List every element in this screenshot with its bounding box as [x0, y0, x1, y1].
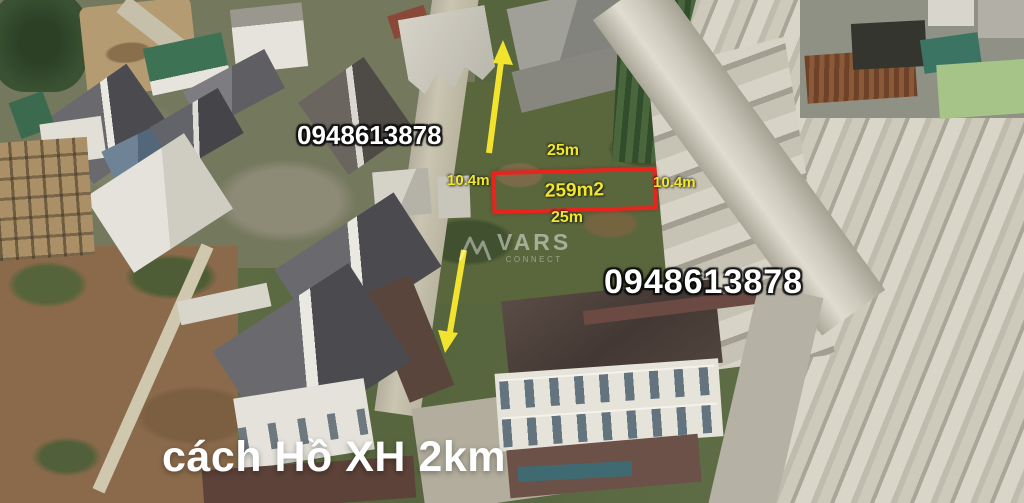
plot-outline: 259m2: [491, 167, 657, 214]
phone-number-bottom: 0948613878: [604, 263, 803, 302]
plot-dim-top: 25m: [547, 142, 579, 160]
phone-number-top: 0948613878: [297, 120, 442, 151]
distance-caption: cách Hồ XH 2km: [162, 433, 506, 482]
vars-logo-icon: [458, 234, 492, 262]
watermark-brand: VARS: [497, 231, 571, 254]
plot-dim-left: 10.4m: [447, 172, 490, 189]
plot-area-label: 259m2: [545, 179, 605, 203]
route-arrow-up-icon: [489, 40, 513, 153]
route-arrow-down-icon: [438, 250, 464, 353]
aerial-photo: 259m2 25m 25m 10.4m 10.4m 0948613878 094…: [0, 0, 1024, 503]
plot-dim-bottom: 25m: [551, 209, 583, 227]
watermark-subtitle: CONNECT: [506, 256, 563, 264]
plot-dim-right: 10.4m: [653, 174, 696, 191]
watermark: VARS CONNECT: [458, 231, 571, 264]
